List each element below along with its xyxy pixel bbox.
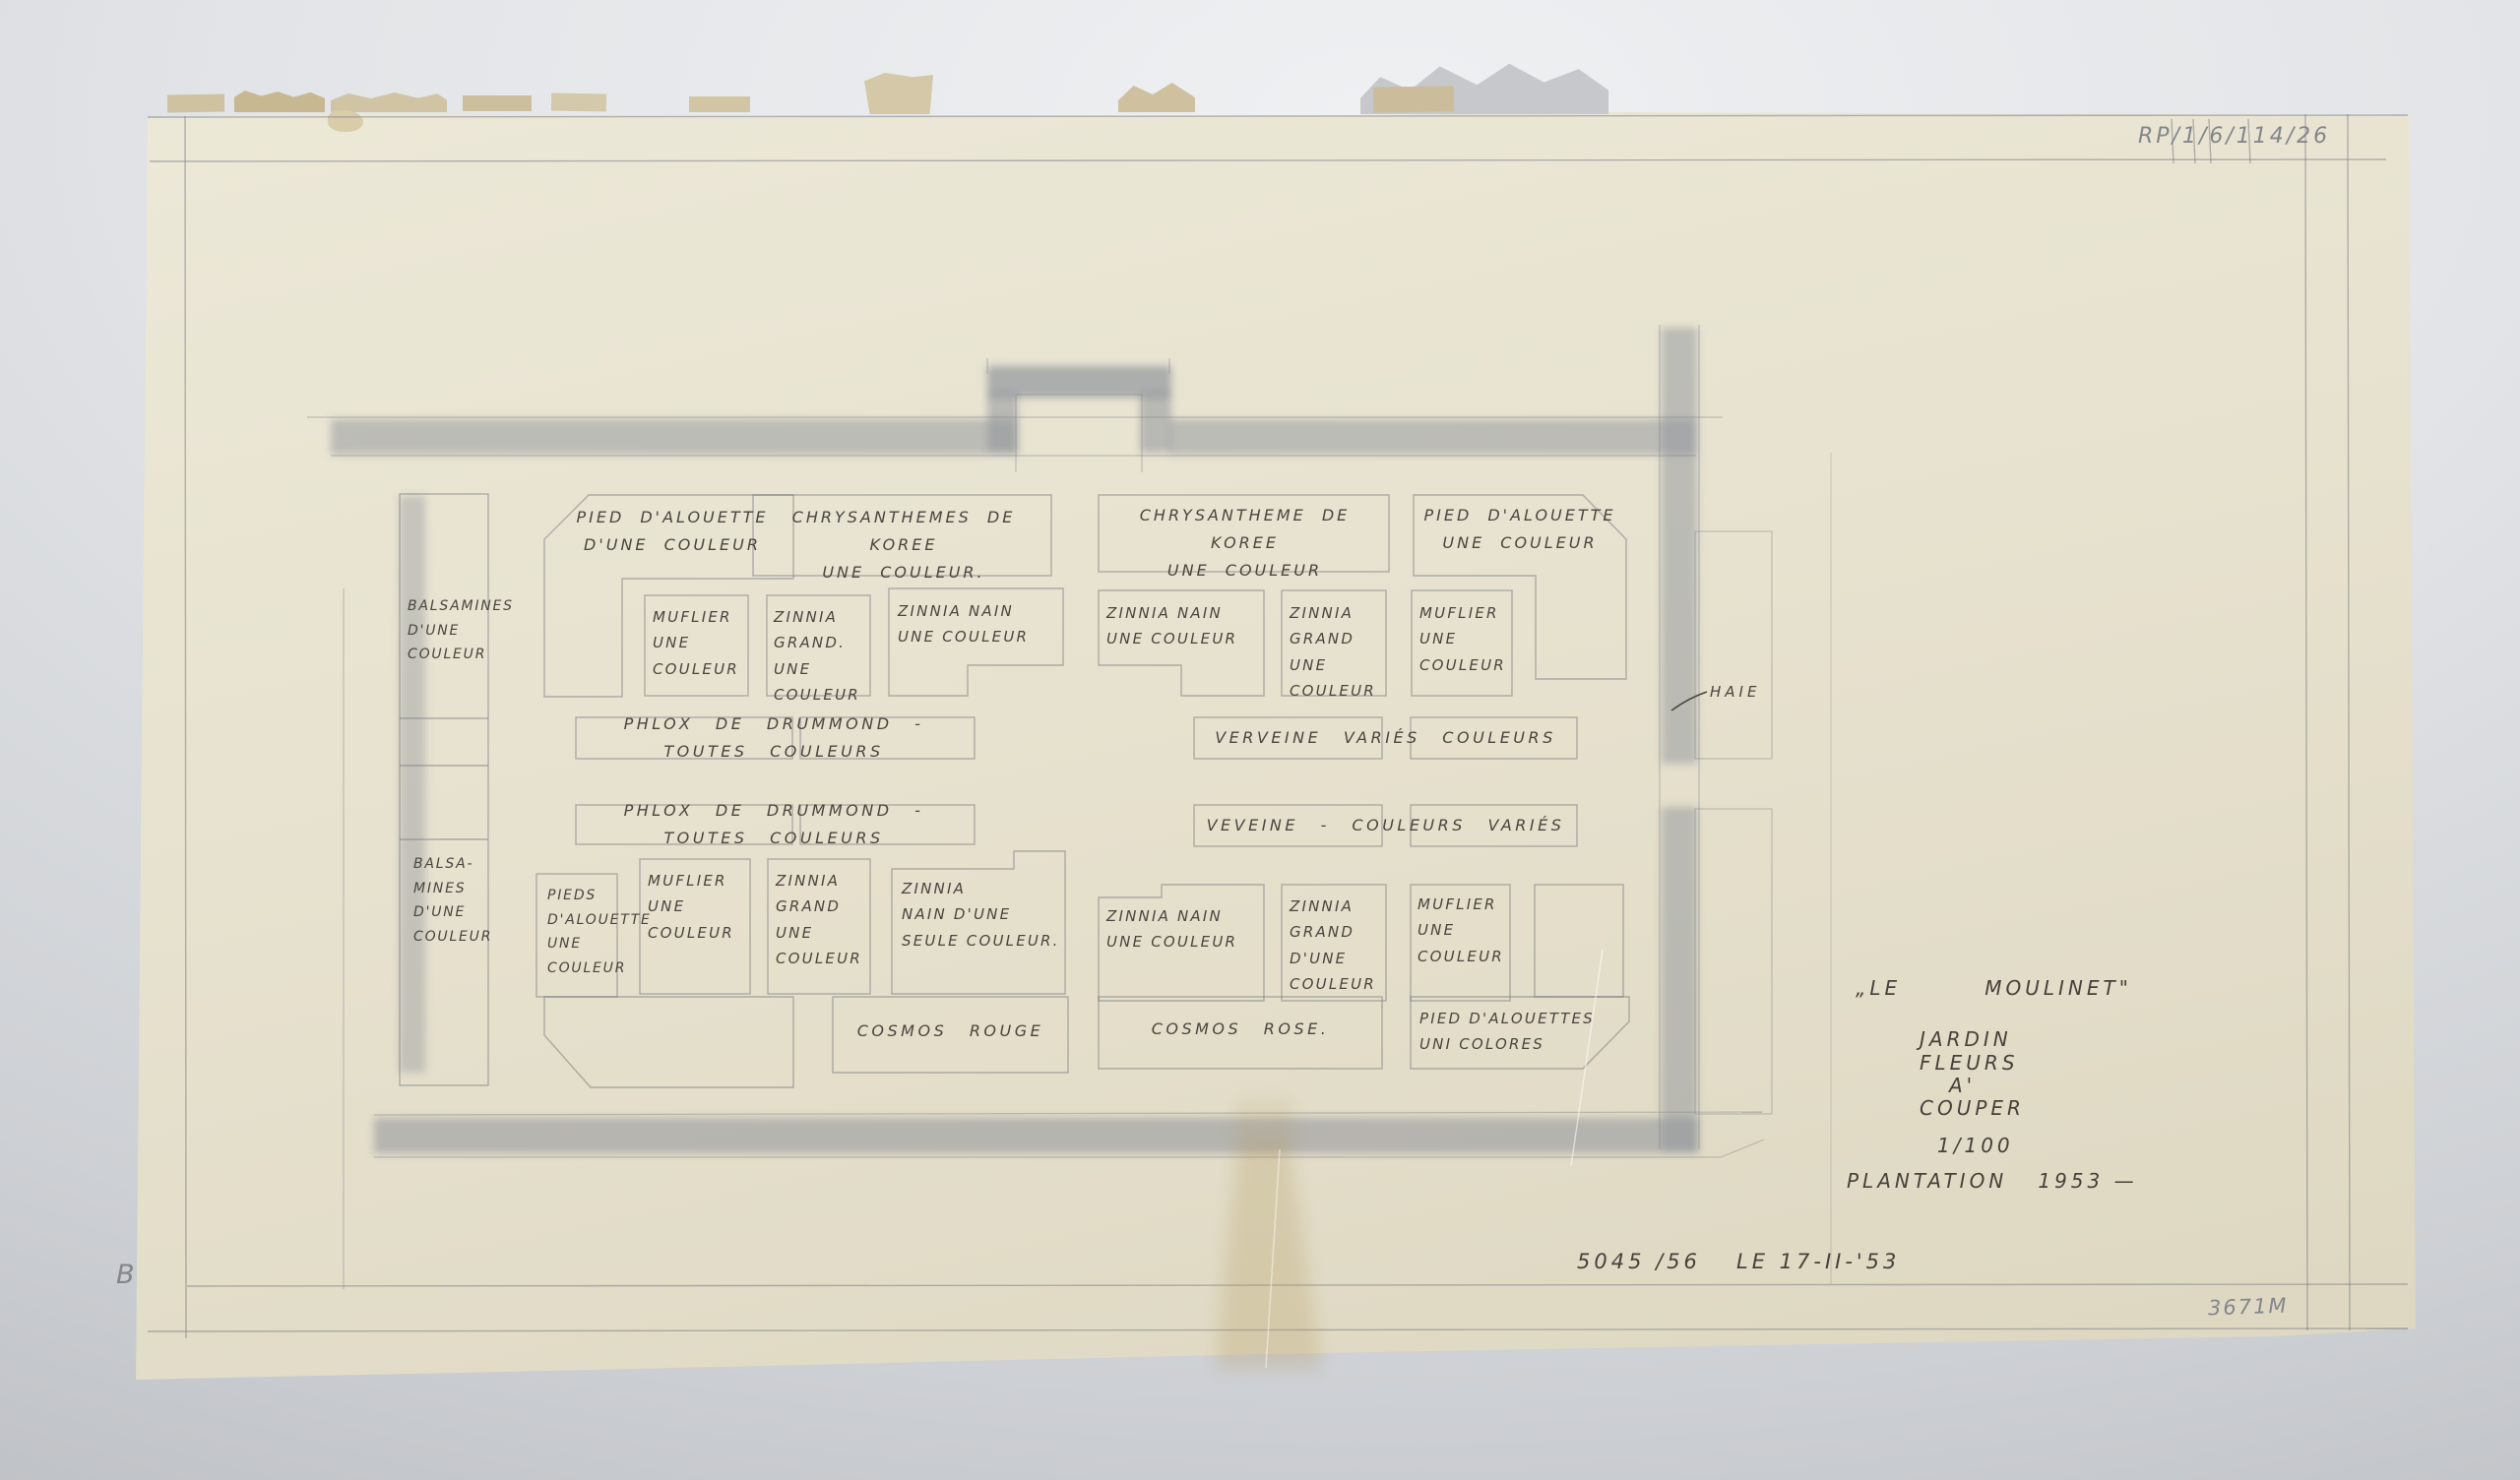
bed-label-pied-alouettes-se: PIED D'ALOUETTES UNI COLORES: [1419, 1006, 1621, 1058]
bed-label-zinnia-nain-e2: ZINNIA NAIN UNE COULEUR: [1106, 903, 1262, 956]
scanned-garden-plan: PIED D'ALOUETTE D'UNE COULEUR CHRYSANTHE…: [0, 0, 2520, 1480]
archive-code-bottom: 3671M: [2208, 1294, 2289, 1321]
hedge-right-lower: [1662, 807, 1697, 1151]
plantation-year: PLANTATION 1953 —: [1847, 1169, 2138, 1193]
drawing-title: „LE MOULINET": [1856, 976, 2132, 1000]
title-line-couper: COUPER: [1920, 1096, 2025, 1120]
bed-label-muflier-w1: MUFLIER UNE COULEUR: [653, 604, 747, 682]
hedge-bottom: [374, 1118, 1699, 1153]
bed-label-pieds-alouette-sw: PIEDS D'ALOUETTE UNE COULEUR: [547, 884, 626, 980]
bed-label-muflier-e1: MUFLIER UNE COULEUR: [1419, 600, 1510, 678]
title-line-a: A': [1949, 1074, 1976, 1097]
drawing-scale: 1/100: [1937, 1134, 2014, 1157]
bed-label-zinnia-nain-w1: ZINNIA NAIN UNE COULEUR: [898, 598, 1060, 650]
title-line-fleurs: FLEURS: [1920, 1051, 2019, 1075]
bed-label-phlox-1: PHLOX DE DRUMMOND - TOUTES COULEURS: [576, 717, 972, 759]
bed-outline-right-column: [1535, 885, 1623, 997]
bed-label-zinnia-grand-w2: ZINNIA GRAND UNE COULEUR: [776, 868, 870, 971]
bed-label-zinnia-grand-e1: ZINNIA GRAND UNE COULEUR: [1290, 600, 1384, 704]
bed-label-chrysanthemes-nw: CHRYSANTHEMES DE KOREE UNE COULEUR.: [756, 504, 1051, 573]
corner-mark: B: [116, 1260, 137, 1290]
bed-label-balsamines-n: BALSAMINES D'UNE COULEUR: [408, 594, 490, 667]
bed-label-pied-alouette-ne: PIED D'ALOUETTE UNE COULEUR: [1416, 502, 1624, 571]
archive-stamp-code: RP/1/6/114/26: [2138, 124, 2330, 149]
bed-outline-sw-bar: [544, 997, 793, 1087]
reference-number: 5045 /56: [1577, 1250, 1701, 1273]
bed-label-cosmos-rose: COSMOS ROSE.: [1099, 997, 1382, 1062]
bed-label-chrysantheme-ne: CHRYSANTHEME DE KOREE UNE COULEUR: [1101, 502, 1389, 569]
bed-label-zinnia-grand-e2: ZINNIA GRAND D'UNE COULEUR: [1290, 894, 1394, 997]
drawing-date: LE 17-II-'53: [1736, 1250, 1900, 1273]
bed-label-zinnia-nain-e1: ZINNIA NAIN UNE COULEUR: [1106, 600, 1262, 652]
bed-label-cosmos-rouge: COSMOS ROUGE: [833, 997, 1068, 1066]
haie-label: HAIE: [1710, 679, 1789, 705]
bed-label-verveine-1: VERVEINE VARIÉS COULEURS: [1194, 717, 1577, 759]
balsamines-shading: [400, 496, 425, 1073]
bed-label-balsamines-s: BALSA- MINES D'UNE COULEUR: [413, 852, 492, 949]
bed-label-zinnia-grand-w1: ZINNIA GRAND. UNE COULEUR: [774, 604, 872, 708]
bed-label-verveine-2: VEVEINE - COULEURS VARIÉS: [1194, 805, 1577, 846]
bed-label-muflier-e2: MUFLIER UNE COULEUR: [1417, 892, 1520, 969]
bed-label-phlox-2: PHLOX DE DRUMMOND - TOUTES COULEURS: [576, 805, 972, 844]
bed-label-muflier-w2: MUFLIER UNE COULEUR: [648, 868, 756, 946]
bed-label-zinnia-nain-w2: ZINNIA NAIN D'UNE SEULE COULEUR.: [902, 876, 1069, 954]
title-line-jardin: JARDIN: [1920, 1027, 2012, 1051]
